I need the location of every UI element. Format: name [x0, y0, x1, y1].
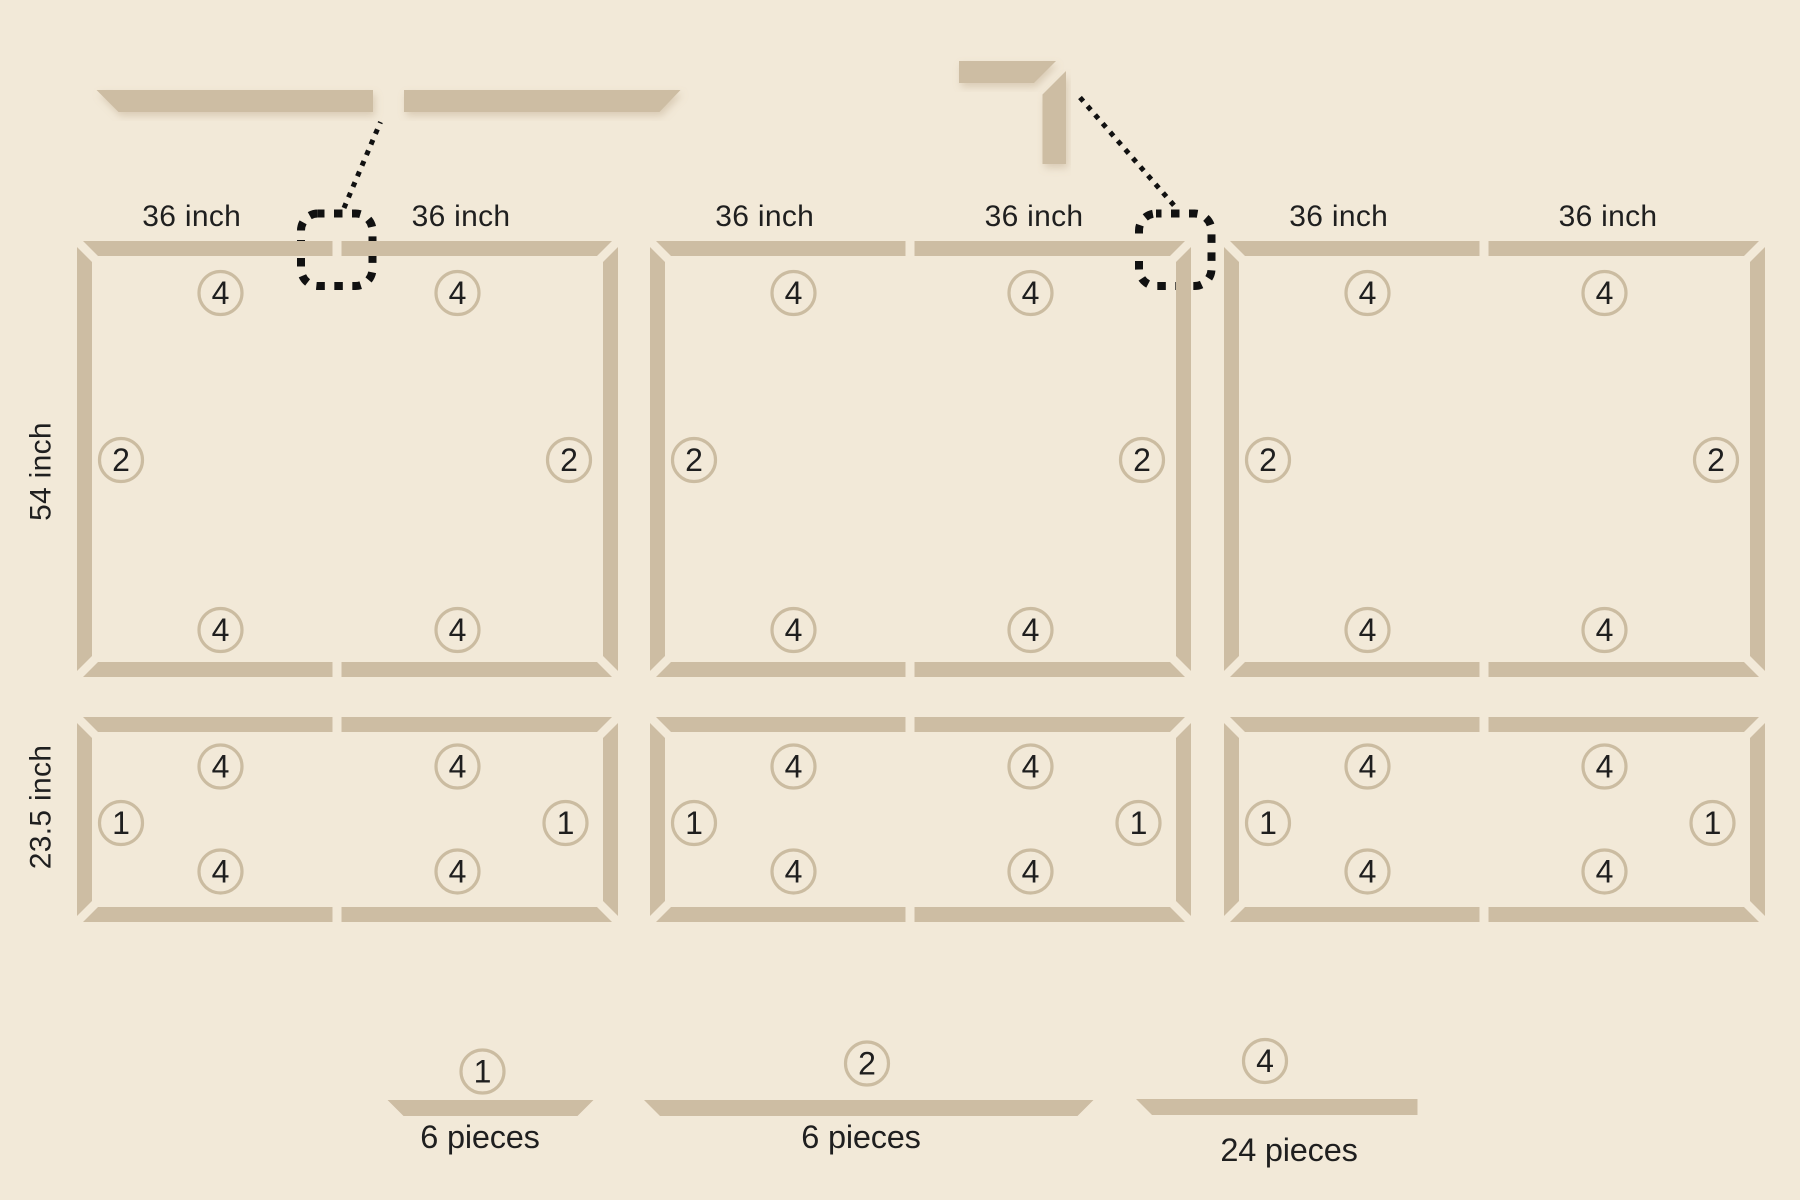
svg-text:54 inch: 54 inch: [25, 422, 58, 521]
svg-text:4: 4: [449, 275, 467, 311]
svg-text:4: 4: [1256, 1043, 1274, 1079]
svg-text:4: 4: [785, 275, 803, 311]
svg-text:2: 2: [560, 442, 578, 478]
svg-text:36 inch: 36 inch: [985, 200, 1084, 233]
svg-text:4: 4: [1596, 275, 1614, 311]
svg-text:1: 1: [557, 805, 575, 841]
svg-text:4: 4: [449, 612, 467, 648]
svg-text:4: 4: [449, 854, 467, 890]
svg-text:4: 4: [212, 275, 230, 311]
svg-text:1: 1: [474, 1054, 492, 1090]
svg-text:1: 1: [1259, 805, 1277, 841]
svg-text:4: 4: [449, 749, 467, 785]
svg-text:4: 4: [785, 612, 803, 648]
svg-text:2: 2: [858, 1046, 876, 1082]
svg-text:2: 2: [112, 442, 130, 478]
svg-text:36 inch: 36 inch: [715, 200, 814, 233]
svg-text:2: 2: [1133, 442, 1151, 478]
svg-text:1: 1: [112, 805, 130, 841]
svg-text:2: 2: [1707, 442, 1725, 478]
svg-text:4: 4: [212, 854, 230, 890]
svg-text:2: 2: [685, 442, 703, 478]
svg-text:36 inch: 36 inch: [412, 200, 511, 233]
svg-text:24 pieces: 24 pieces: [1220, 1132, 1357, 1168]
svg-text:4: 4: [212, 749, 230, 785]
svg-text:1: 1: [1704, 805, 1722, 841]
svg-text:4: 4: [1359, 854, 1377, 890]
svg-text:4: 4: [785, 749, 803, 785]
svg-text:1: 1: [685, 805, 703, 841]
svg-text:4: 4: [1022, 854, 1040, 890]
svg-text:4: 4: [1359, 749, 1377, 785]
svg-text:1: 1: [1130, 805, 1148, 841]
svg-text:36 inch: 36 inch: [1289, 200, 1388, 233]
svg-text:23.5 inch: 23.5 inch: [25, 745, 58, 869]
svg-text:4: 4: [785, 854, 803, 890]
svg-text:4: 4: [1022, 612, 1040, 648]
svg-text:4: 4: [212, 612, 230, 648]
svg-text:6 pieces: 6 pieces: [801, 1119, 920, 1155]
svg-text:36 inch: 36 inch: [1559, 200, 1658, 233]
svg-text:4: 4: [1022, 275, 1040, 311]
svg-text:4: 4: [1596, 854, 1614, 890]
svg-text:36 inch: 36 inch: [142, 200, 241, 233]
svg-text:2: 2: [1259, 442, 1277, 478]
svg-text:4: 4: [1359, 275, 1377, 311]
svg-text:4: 4: [1596, 749, 1614, 785]
svg-text:4: 4: [1359, 612, 1377, 648]
svg-text:4: 4: [1022, 749, 1040, 785]
svg-text:6 pieces: 6 pieces: [420, 1119, 539, 1155]
svg-text:4: 4: [1596, 612, 1614, 648]
